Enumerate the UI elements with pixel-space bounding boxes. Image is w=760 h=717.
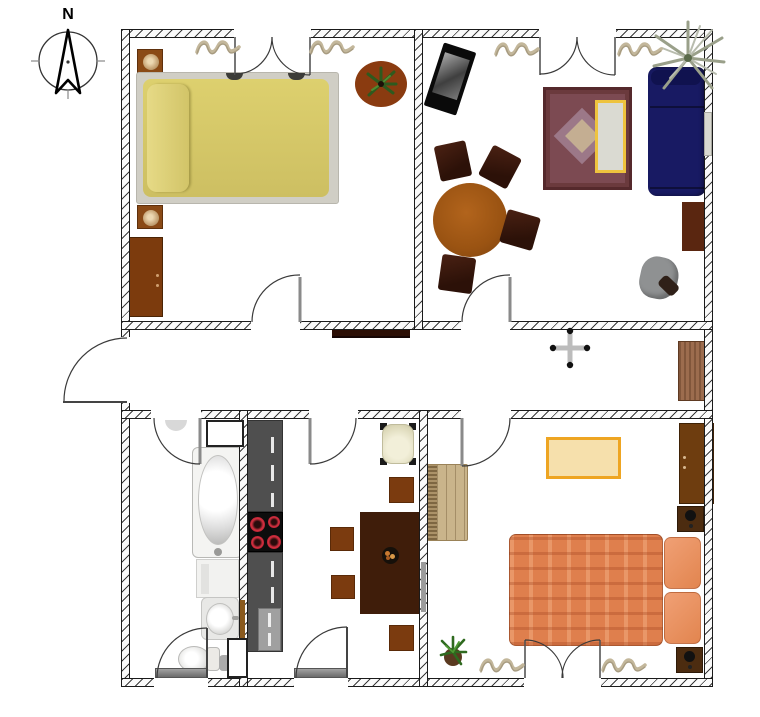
door-bedroom1-hall[interactable] xyxy=(252,275,300,322)
compass-rose[interactable] xyxy=(31,30,105,99)
double-door-living[interactable] xyxy=(540,37,615,75)
floor-plan: N xyxy=(0,0,760,717)
door-kitchen-exterior[interactable] xyxy=(296,627,347,678)
overlay-svg xyxy=(0,0,760,717)
door-living-hall[interactable] xyxy=(462,275,510,322)
potted-plant-bedroom1[interactable] xyxy=(355,61,407,107)
door-bathroom-exterior[interactable] xyxy=(157,628,207,678)
double-door-bedroom1[interactable] xyxy=(235,37,310,75)
door-kitchen-hall[interactable] xyxy=(310,418,356,464)
door-bathroom-hall[interactable] xyxy=(154,418,200,464)
palm-plant[interactable] xyxy=(654,22,724,88)
ceiling-light[interactable] xyxy=(550,328,590,368)
potted-plant-bedroom2[interactable] xyxy=(441,637,466,666)
compass-north-label: N xyxy=(58,6,78,24)
double-door-bedroom2[interactable] xyxy=(525,640,600,678)
door-bedroom2-hall[interactable] xyxy=(462,418,510,466)
entrance-door[interactable] xyxy=(63,338,127,402)
